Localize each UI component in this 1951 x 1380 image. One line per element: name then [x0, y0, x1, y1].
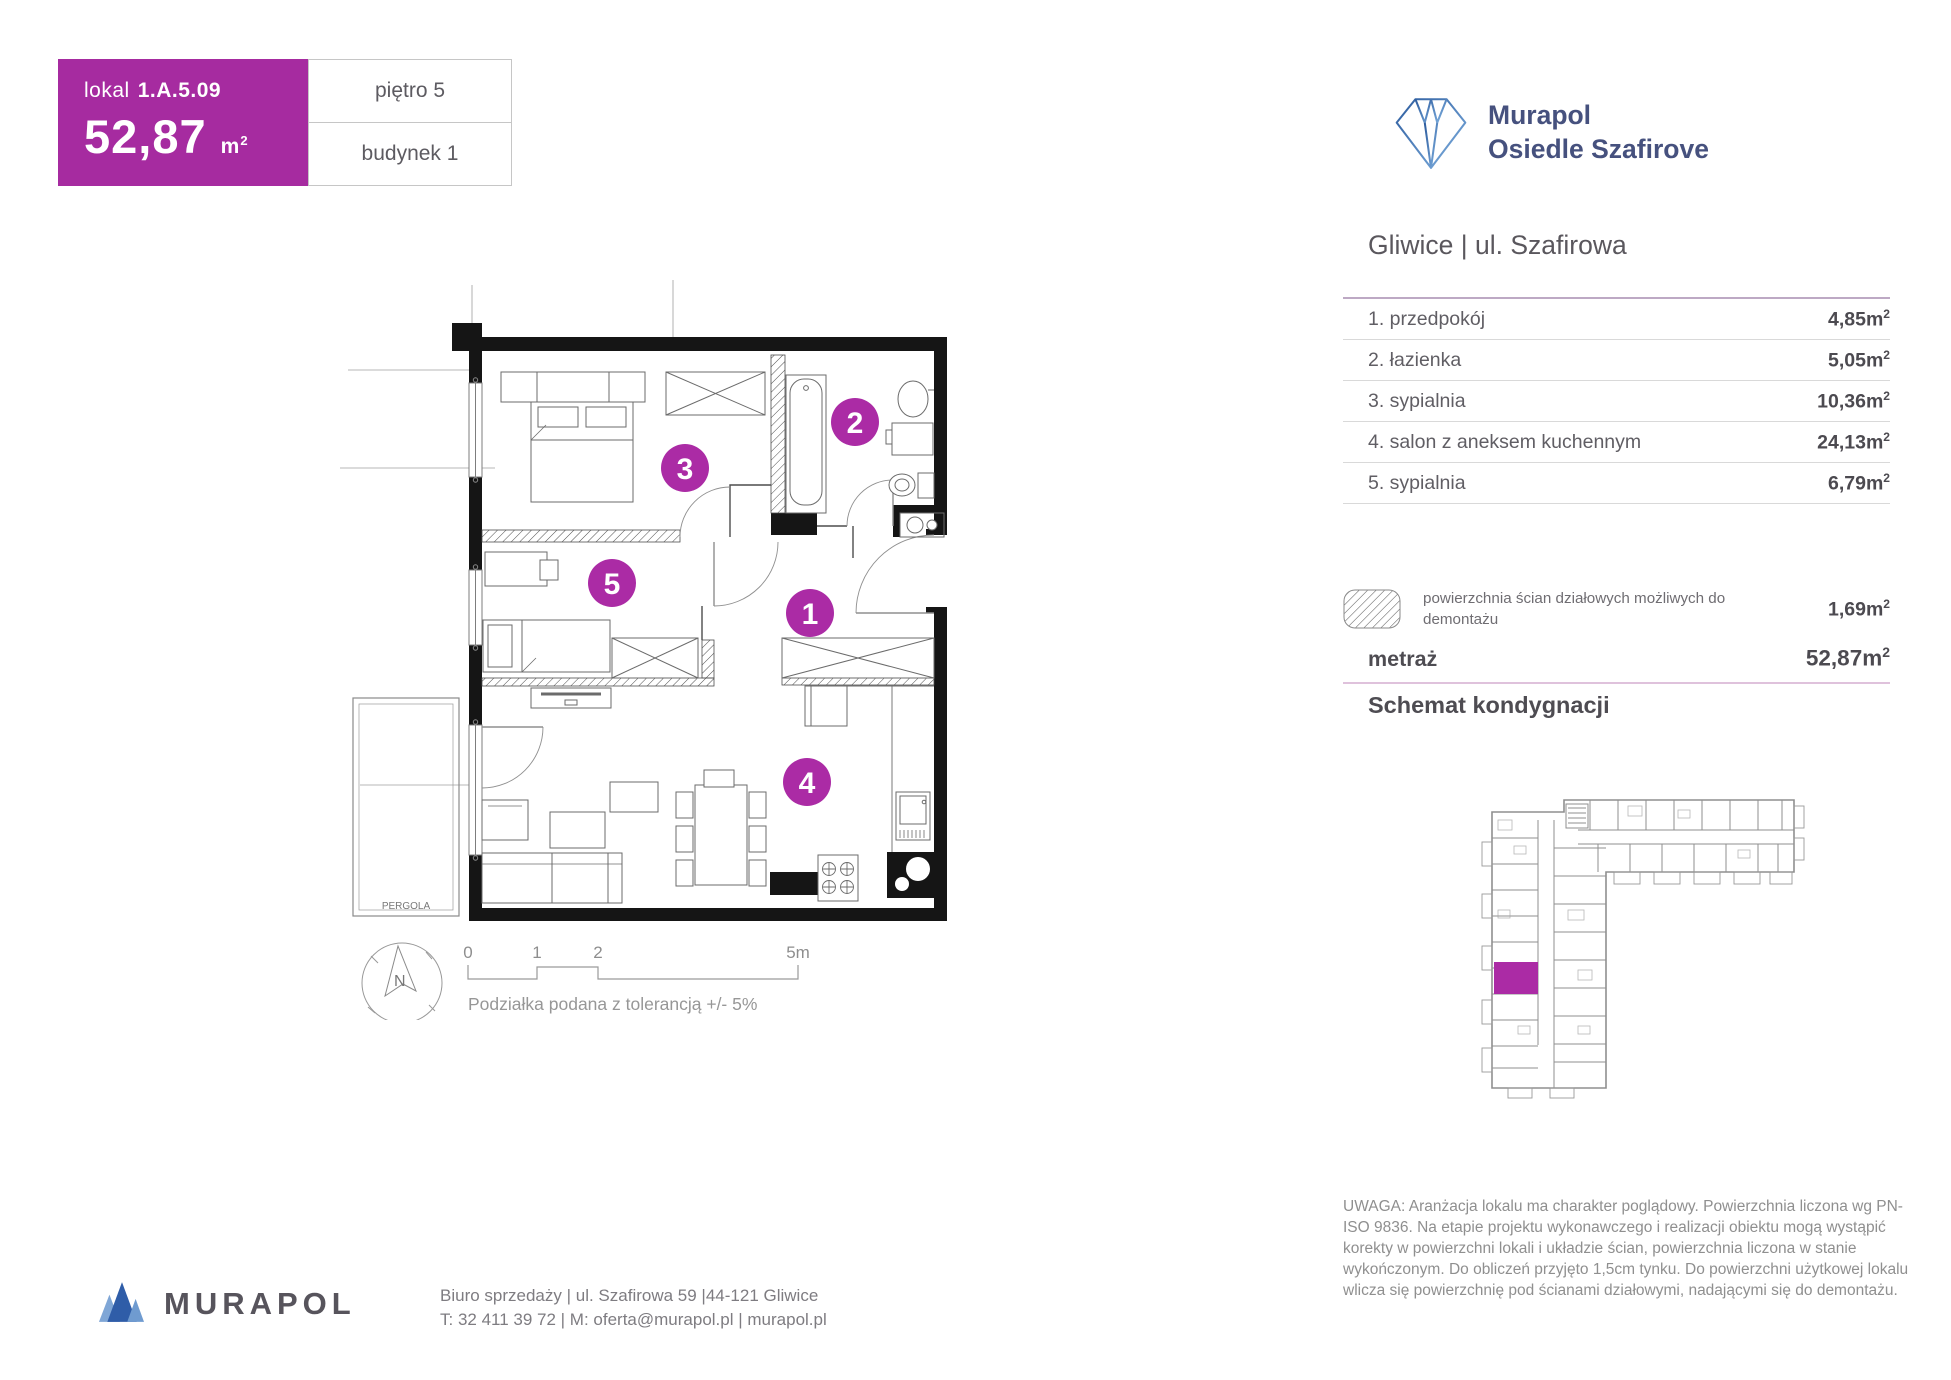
scale-1: 1 — [532, 943, 541, 962]
pergola-label: PERGOLA — [382, 901, 431, 912]
unit-card: lokal1.A.5.09 52,87m2 — [58, 59, 308, 186]
room-number-4: 4 — [799, 767, 816, 800]
scale-caption: Podziałka podana z tolerancją +/- 5% — [468, 994, 757, 1014]
unit-label-row: lokal1.A.5.09 — [84, 79, 308, 103]
footer-contact: Biuro sprzedaży | ul. Szafirowa 59 |44-1… — [440, 1284, 827, 1332]
highlighted-unit — [1494, 962, 1538, 994]
floor-box: piętro 5 — [308, 59, 512, 123]
room-name: 2. łazienka — [1368, 349, 1461, 372]
diamond-logo-icon — [1392, 90, 1470, 174]
floorplan-svg: PERGOLA — [340, 280, 960, 1020]
compass-icon: N — [362, 943, 442, 1020]
compass-n-label: N — [394, 973, 406, 990]
location-heading: Gliwice | ul. Szafirowa — [1368, 230, 1627, 261]
bathroom-fixtures — [786, 375, 944, 537]
room-number-1: 1 — [802, 598, 819, 631]
disclaimer-text: UWAGA: Aranżacja lokalu ma charakter pog… — [1343, 1196, 1909, 1301]
hatched-swatch-icon — [1343, 589, 1401, 629]
room-number-3: 3 — [677, 453, 694, 486]
bedroom3-furniture — [501, 372, 765, 502]
windows — [469, 378, 482, 860]
table-row: 4. salon z aneksem kuchennym 24,13m2 — [1343, 422, 1890, 463]
room-number-5: 5 — [604, 568, 621, 601]
murapol-m-logo-icon — [92, 1280, 152, 1324]
pergola: PERGOLA — [353, 698, 459, 916]
room-name: 4. salon z aneksem kuchennym — [1368, 431, 1641, 454]
room-number-2: 2 — [847, 407, 864, 440]
legend-text: powierzchnia ścian działowych możliwych … — [1423, 588, 1741, 630]
unit-area-row: 52,87m2 — [84, 109, 308, 164]
table-row: 1. przedpokój 4,85m2 — [1343, 299, 1890, 340]
room-name: 1. przedpokój — [1368, 308, 1485, 331]
brand-name: Murapol Osiedle Szafirove — [1488, 90, 1709, 166]
table-row: 2. łazienka 5,05m2 — [1343, 340, 1890, 381]
table-row: 5. sypialnia 6,79m2 — [1343, 463, 1890, 504]
floor-schematic-svg — [1478, 790, 1808, 1100]
unit-label: lokal — [84, 79, 130, 102]
hall-furniture — [782, 638, 934, 678]
schemat-title: Schemat kondygnacji — [1368, 692, 1610, 719]
footer-address: Biuro sprzedaży | ul. Szafirowa 59 |44-1… — [440, 1284, 827, 1308]
demountable-walls-legend: powierzchnia ścian działowych możliwych … — [1343, 588, 1890, 630]
unit-area: 52,87 — [84, 110, 207, 163]
metraz-label: metraż — [1368, 647, 1437, 672]
footer-phone-email: T: 32 411 39 72 | M: oferta@murapol.pl |… — [440, 1308, 827, 1332]
rooms-table: 1. przedpokój 4,85m2 2. łazienka 5,05m2 … — [1343, 297, 1890, 504]
footer-brand: MURAPOL — [164, 1286, 356, 1322]
livingroom-kitchen-furniture — [482, 686, 934, 903]
metraz-row: metraż 52,87m2 — [1343, 644, 1890, 684]
scale-0: 0 — [463, 943, 472, 962]
scale-5m: 5m — [786, 943, 810, 962]
scale-2: 2 — [593, 943, 602, 962]
room-name: 3. sypialnia — [1368, 390, 1466, 413]
building-box: budynek 1 — [308, 122, 512, 186]
room-name: 5. sypialnia — [1368, 472, 1466, 495]
scale-bar: 0 1 2 5m Podziałka podana z tolerancją +… — [463, 943, 810, 1014]
brand-block: Murapol Osiedle Szafirove — [1392, 90, 1709, 174]
table-row: 3. sypialnia 10,36m2 — [1343, 381, 1890, 422]
unit-number: 1.A.5.09 — [138, 79, 221, 102]
